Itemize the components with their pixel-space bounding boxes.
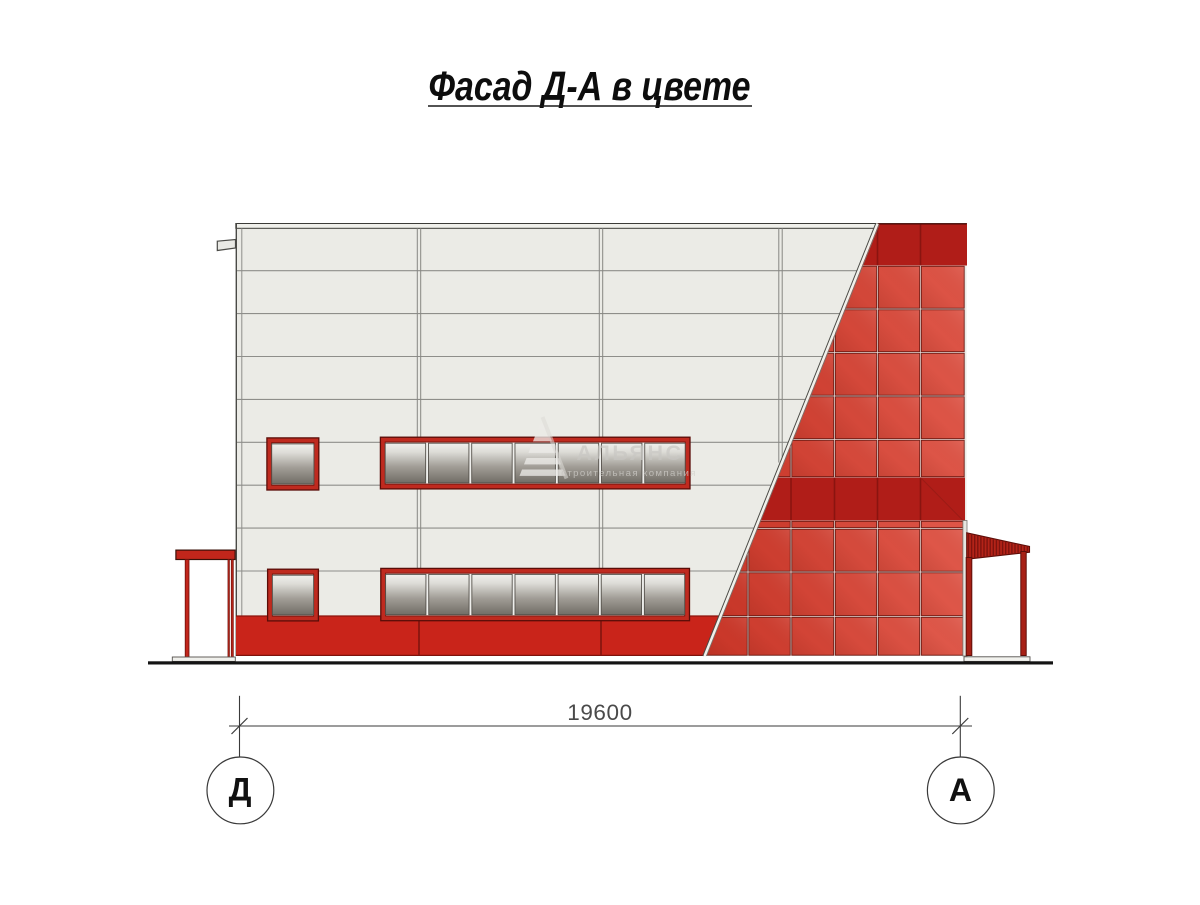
svg-text:АЛЬЯНС: АЛЬЯНС [576, 441, 683, 465]
svg-text:А: А [949, 772, 972, 808]
svg-text:19600: 19600 [567, 700, 633, 725]
svg-text:строительная компания: строительная компания [561, 468, 697, 479]
svg-text:Д: Д [229, 772, 252, 808]
svg-text:Фасад Д-А в цвете: Фасад Д-А в цвете [429, 63, 751, 109]
